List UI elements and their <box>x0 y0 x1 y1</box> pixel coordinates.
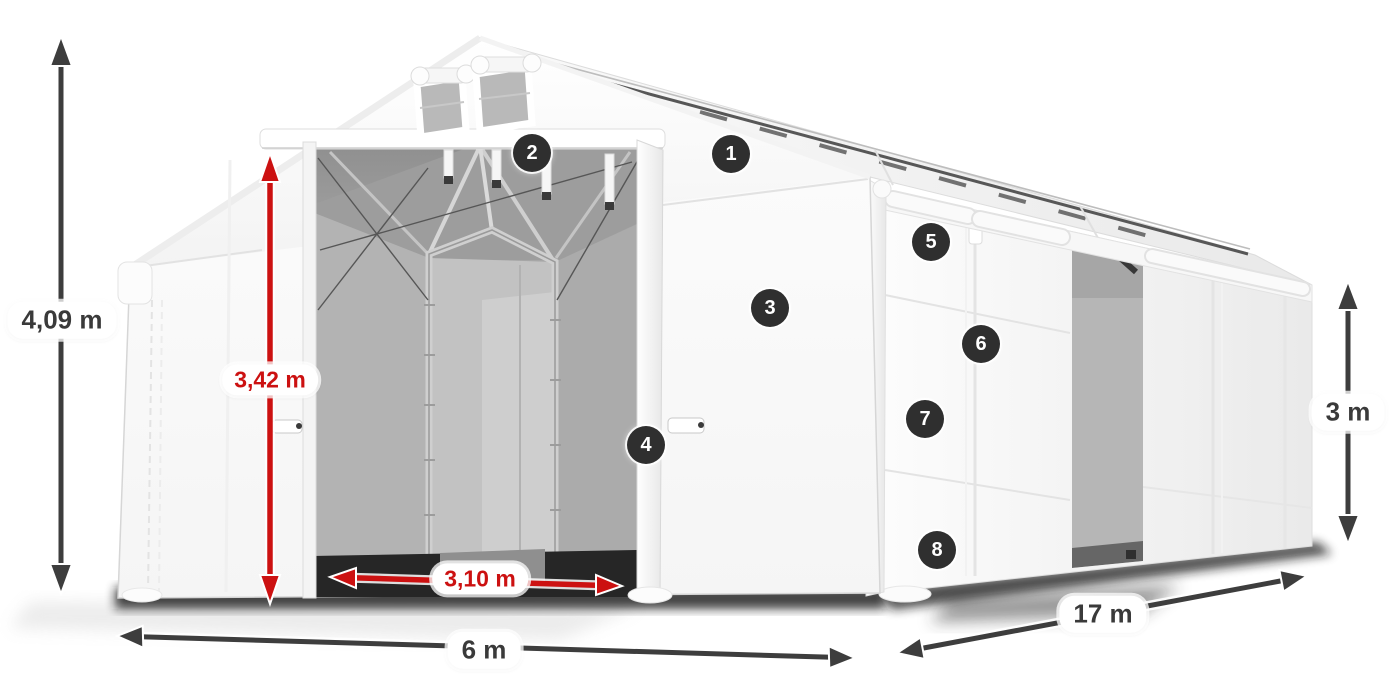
callout-4-badge: 4 <box>627 426 665 464</box>
label-side-height: 3 m <box>1312 394 1385 431</box>
eave-corner-cap <box>873 180 891 198</box>
tent-dimension-diagram: 4,09 m 3,42 m 3,10 m 6 m 17 m 3 m 1 2 3 … <box>0 0 1400 700</box>
eave-overhang-left <box>118 262 152 304</box>
tent-illustration <box>0 0 1400 700</box>
roof-vent-right <box>471 54 541 131</box>
callout-3-badge: 3 <box>751 289 789 327</box>
front-door-opening <box>312 143 642 597</box>
callout-5-badge: 5 <box>912 223 950 261</box>
label-entrance-width: 3,10 m <box>432 563 528 594</box>
label-total-height: 4,09 m <box>8 302 117 339</box>
label-length: 17 m <box>1059 596 1146 633</box>
right-door-post <box>637 140 663 600</box>
side-door-opening <box>1072 238 1143 568</box>
callout-8-badge: 8 <box>918 531 956 569</box>
roof-vent-left <box>411 65 475 137</box>
callout-2-badge: 2 <box>513 134 551 172</box>
label-inner-height: 3,42 m <box>222 364 318 395</box>
tarp-bottom-curl <box>879 586 931 602</box>
middle-door-panel <box>312 212 429 595</box>
tent-interior <box>312 143 642 597</box>
callout-6-badge: 6 <box>962 325 1000 363</box>
label-width: 6 m <box>448 632 521 669</box>
callout-7-badge: 7 <box>906 400 944 438</box>
callout-1-badge: 1 <box>712 135 750 173</box>
